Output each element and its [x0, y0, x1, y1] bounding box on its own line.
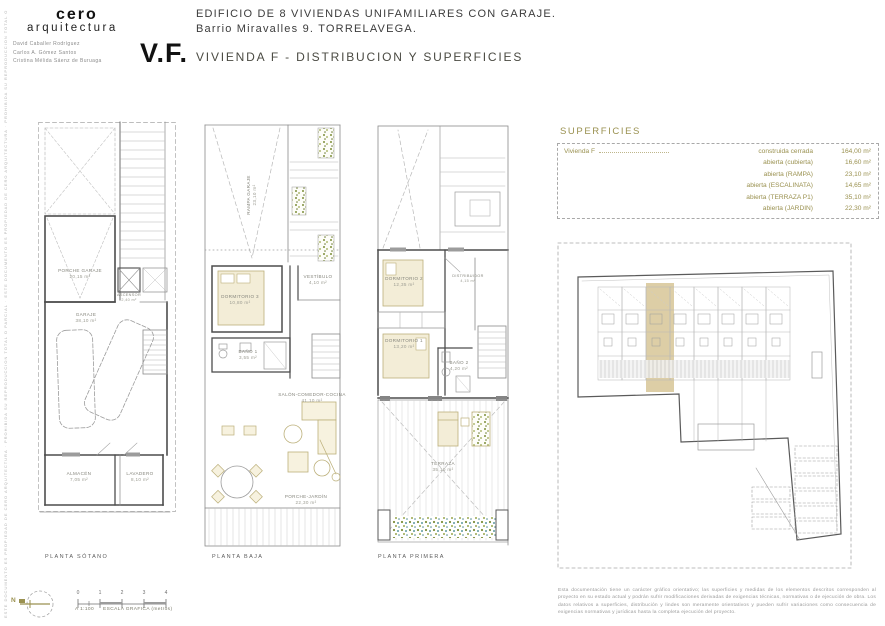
plans-linework — [0, 0, 885, 626]
superficies-row: abierta (cubierta) 16,60 m² — [564, 159, 871, 169]
sheet-code: V.F. — [140, 38, 188, 69]
room-label: PORCHE-JARDÍN 22,30 m² — [285, 494, 327, 506]
room-label: DORMITORIO 3 10,80 m² — [221, 294, 259, 306]
room-label: DORMITORIO 1 13,20 m² — [385, 338, 423, 350]
site-plan-linework — [558, 243, 851, 568]
scale-tick: 2 — [118, 590, 126, 596]
plan-baja-linework — [205, 125, 340, 546]
room-label: VESTÍBULO 4,10 m² — [304, 274, 333, 286]
architect-names: David Caballer Rodríguez Carlos A. Gómez… — [13, 40, 102, 66]
room-label: BAÑO 2 4,20 m² — [450, 360, 469, 372]
superficies-row: abierta (RAMPA) 23,10 m² — [564, 171, 871, 181]
scale-tick: 1 — [96, 590, 104, 596]
scale-caption: ESCALA GRAFICA (metros) — [103, 607, 172, 612]
room-label: LAVADERO 8,10 m² — [126, 471, 153, 483]
superficies-title: SUPERFICIES — [560, 126, 641, 137]
plan-caption-primera: PLANTA PRIMERA — [378, 554, 445, 560]
superficies-row: Vivienda F construida cerrada 164,00 m² — [564, 148, 871, 158]
room-label: DORMITORIO 2 12,35 m² — [385, 276, 423, 288]
logo-arquitectura: arquitectura — [27, 22, 118, 34]
architect-name: David Caballer Rodríguez — [13, 40, 102, 49]
scale-tick: 0 — [74, 590, 82, 596]
plan-primera-linework — [378, 126, 508, 545]
room-label: SALÓN-COMEDOR-COCINA 41,10 m² — [278, 392, 346, 404]
room-label: TERRAZA 35,10 m² — [431, 461, 455, 473]
room-label: ASCENSOR 2,40 m² — [117, 293, 141, 303]
sheet-title: VIVIENDA F - DISTRIBUCION Y SUPERFICIES — [196, 50, 523, 64]
room-label: ALMACÉN 7,05 m² — [67, 471, 92, 483]
project-title-line1: EDIFICIO DE 8 VIVIENDAS UNIFAMILIARES CO… — [196, 8, 556, 20]
room-label: GARAJE 38,10 m² — [76, 312, 97, 324]
plan-sotano-linework — [39, 122, 176, 512]
north-label: N — [11, 597, 16, 604]
project-title-line2: Barrio Miravalles 9. TORRELAVEGA. — [196, 23, 417, 35]
room-label: RAMPA GARAJE 23,10 m² — [246, 175, 258, 215]
dotted-leader — [599, 151, 669, 153]
side-copyright-note: ESTE DOCUMENTO ES PROPIEDAD DE CERO ARQU… — [3, 8, 11, 618]
scale-tick: 4 — [162, 590, 170, 596]
scale-tick: 3 — [140, 590, 148, 596]
superficies-table: Vivienda F construida cerrada 164,00 m² … — [557, 143, 879, 219]
architect-name: Cristina Mélida Sáenz de Buruaga — [13, 57, 102, 66]
architect-name: Carlos A. Gómez Santos — [13, 49, 102, 58]
superficies-row: abierta (JARDIN) 22,30 m² — [564, 205, 871, 215]
north-arrow-icon — [19, 591, 53, 617]
scale-prefix: A 1:100 — [75, 607, 94, 612]
plan-caption-sotano: PLANTA SÓTANO — [45, 554, 108, 560]
drawing-sheet: ESTE DOCUMENTO ES PROPIEDAD DE CERO ARQU… — [0, 0, 885, 626]
room-label: PORCHE GARAJE 20,15 m² — [58, 268, 102, 280]
superficies-row: abierta (ESCALINATA) 14,65 m² — [564, 182, 871, 192]
room-label: DISTRIBUIDOR 4,15 m² — [452, 274, 483, 284]
superficies-row: abierta (TERRAZA P1) 35,10 m² — [564, 194, 871, 204]
legal-disclaimer: Esta documentación tiene un carácter grá… — [558, 587, 876, 616]
room-label: BAÑO 1 3,55 m² — [239, 349, 258, 361]
plan-caption-baja: PLANTA BAJA — [212, 554, 263, 560]
unit-name: Vivienda F — [564, 148, 595, 155]
